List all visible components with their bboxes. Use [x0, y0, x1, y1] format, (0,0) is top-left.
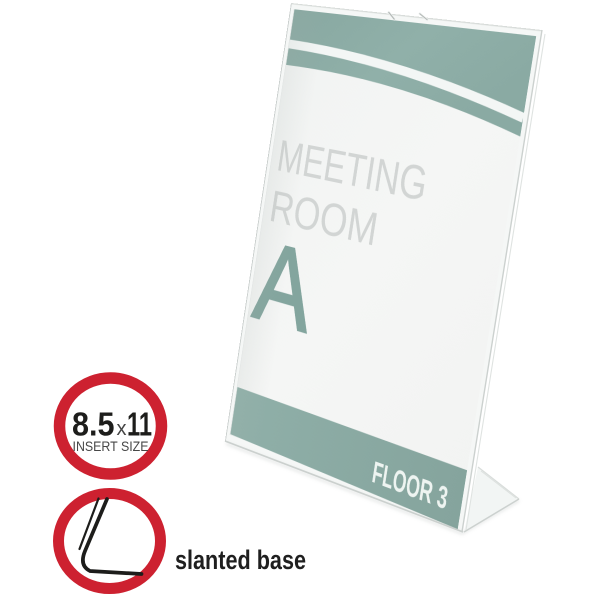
svg-text:INSERT SIZE: INSERT SIZE: [73, 439, 149, 454]
svg-text:8.5: 8.5: [72, 407, 115, 444]
svg-text:11: 11: [127, 407, 152, 444]
svg-text:x: x: [117, 418, 127, 440]
svg-text:slanted base: slanted base: [175, 545, 306, 575]
